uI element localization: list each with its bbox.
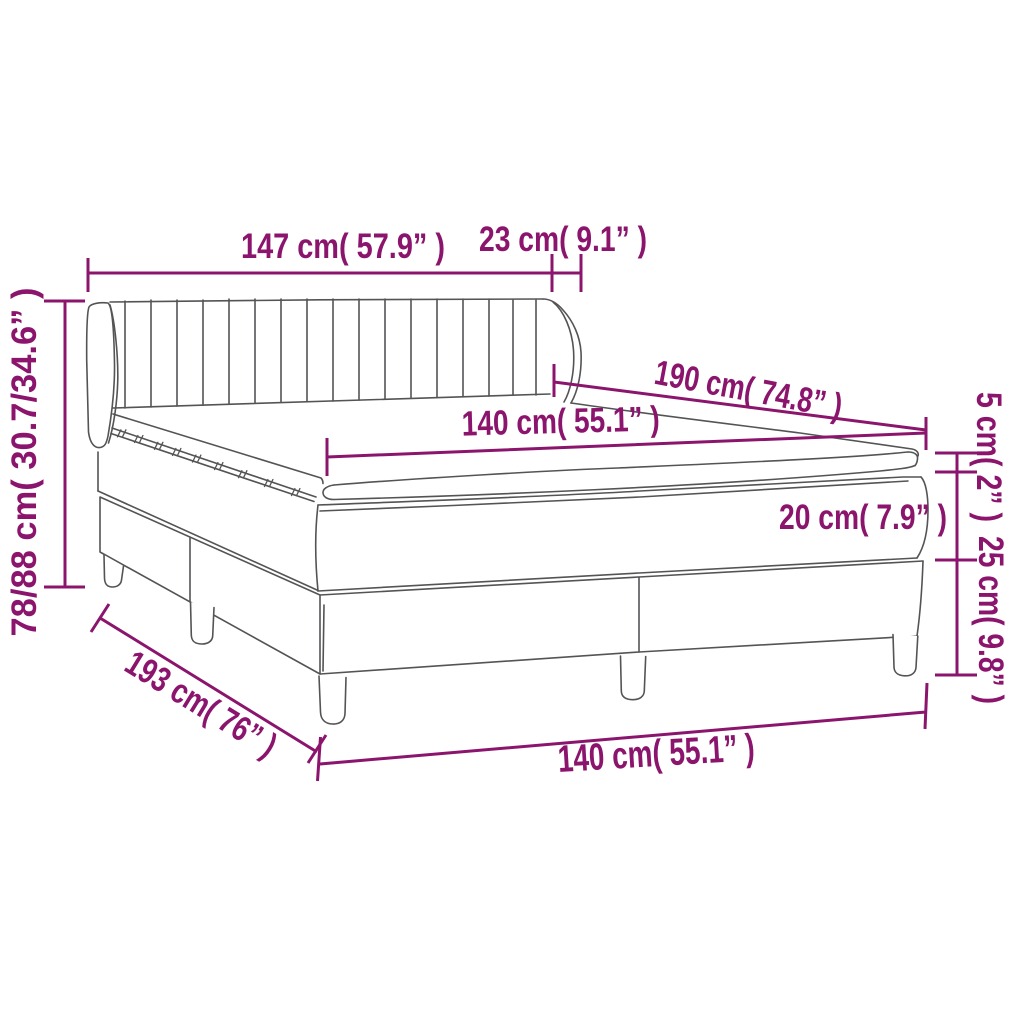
svg-text:20 cm( 7.9” ): 20 cm( 7.9” ) [779, 498, 947, 537]
svg-text:78/88 cm( 30.7/34.6” ): 78/88 cm( 30.7/34.6” ) [5, 288, 44, 637]
svg-text:23 cm( 9.1” ): 23 cm( 9.1” ) [479, 220, 647, 259]
svg-text:147 cm( 57.9” ): 147 cm( 57.9” ) [241, 227, 445, 266]
svg-text:5 cm( 2” ): 5 cm( 2” ) [969, 392, 1008, 522]
svg-text:25 cm( 9.8” ): 25 cm( 9.8” ) [971, 536, 1010, 704]
svg-text:140 cm( 55.1” ): 140 cm( 55.1” ) [461, 399, 660, 443]
